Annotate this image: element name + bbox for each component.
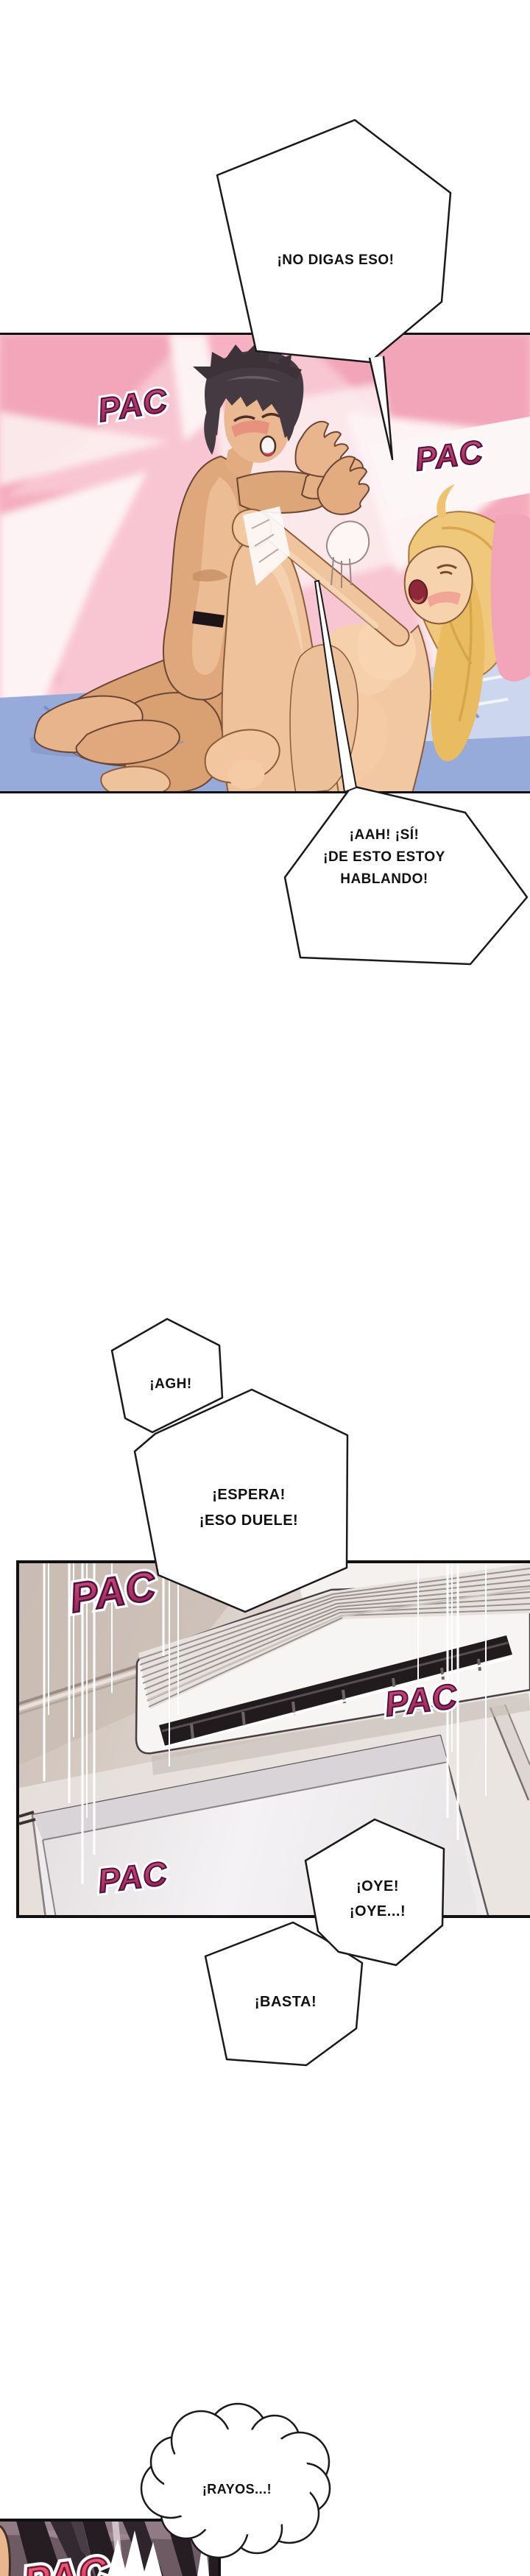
svg-text:¡AGH!: ¡AGH! [149, 1376, 191, 1392]
svg-text:HABLANDO!: HABLANDO! [340, 871, 428, 887]
svg-text:¡OYE...!: ¡OYE...! [350, 1903, 406, 1919]
svg-text:¡NO DIGAS ESO!: ¡NO DIGAS ESO! [277, 252, 394, 268]
svg-text:¡AAH! ¡SÍ!: ¡AAH! ¡SÍ! [350, 827, 420, 843]
svg-text:¡ESPERA!: ¡ESPERA! [212, 1487, 286, 1503]
svg-text:¡OYE!: ¡OYE! [356, 1878, 399, 1894]
svg-text:¡BASTA!: ¡BASTA! [255, 1994, 317, 2010]
svg-text:¡RAYOS...!: ¡RAYOS...! [202, 2482, 272, 2497]
svg-text:¡DE ESTO ESTOY: ¡DE ESTO ESTOY [323, 849, 445, 865]
svg-text:¡ESO DUELE!: ¡ESO DUELE! [199, 1512, 298, 1529]
